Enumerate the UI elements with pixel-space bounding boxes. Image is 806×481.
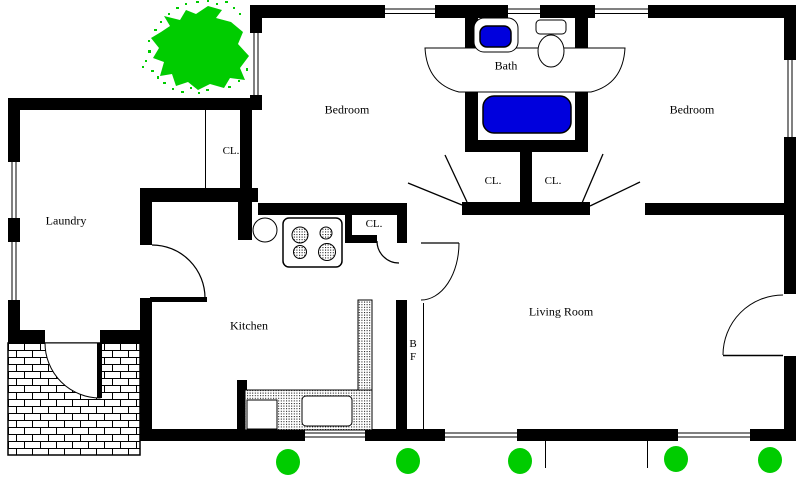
window-laundry-left-1 (8, 162, 20, 218)
shrub (664, 446, 688, 472)
burner (292, 227, 308, 243)
window-bedroom-right (784, 60, 796, 137)
window-bottom-3 (678, 429, 750, 441)
window-main-left (250, 33, 262, 95)
laundry-door-leaf (150, 297, 207, 302)
wall-laundry-bottom-left (8, 330, 45, 343)
label-bath: Bath (495, 59, 518, 74)
label-bedroom-left: Bedroom (325, 103, 370, 118)
window-laundry-left-2 (8, 242, 20, 300)
wall-kitchen-left-stub (238, 202, 252, 240)
burner (294, 246, 307, 259)
patio-door-leaf (97, 343, 102, 398)
floor-plan: Bedroom Bedroom Bath Laundry Kitchen Liv… (0, 0, 806, 481)
window-top-3 (595, 5, 648, 18)
wall-kitchen-top (258, 203, 407, 215)
label-bedroom-right: Bedroom (670, 103, 715, 118)
shrub (758, 447, 782, 473)
bath-sink (474, 18, 518, 52)
bath-sink-basin (480, 26, 511, 47)
window-top-1 (385, 5, 435, 18)
wall-kitchen-closet-right (397, 215, 407, 243)
wall-bifold (396, 300, 407, 431)
label-kitchen-closet: CL. (366, 218, 383, 230)
burner (319, 244, 336, 261)
window-bottom-1 (305, 429, 365, 441)
wall-bath-bottom (465, 140, 588, 152)
wall-wing-top (8, 98, 262, 110)
label-hall-closet-right: CL. (545, 175, 562, 187)
shrub (508, 448, 532, 474)
label-bifold-f: F (410, 351, 416, 364)
burner (320, 227, 332, 239)
label-hall-closet-left: CL. (485, 175, 502, 187)
label-bifold-b: B (409, 338, 416, 351)
wall-wing-left (8, 98, 20, 343)
wall-bedroom-left-side (240, 98, 252, 202)
wall-kitchen-closet-bottom (345, 235, 377, 243)
toilet-bowl (538, 35, 564, 67)
wall-laundry-right-lower (140, 298, 152, 441)
floor-plan-drawing (0, 0, 806, 481)
appliance (247, 400, 277, 429)
front-door-opening (784, 294, 796, 356)
stove (283, 218, 342, 267)
label-laundry-closet: CL. (223, 145, 240, 157)
shrub (276, 449, 300, 475)
label-bifold: B F (409, 338, 416, 364)
shrub (396, 448, 420, 474)
toilet (536, 20, 566, 67)
toilet-tank (536, 20, 566, 34)
label-kitchen: Kitchen (230, 319, 268, 334)
wall-hall-closet-divider (520, 152, 532, 215)
bath-vanity-arch (425, 48, 625, 92)
kitchen-sink (253, 218, 277, 242)
window-bottom-2 (445, 429, 517, 441)
label-laundry: Laundry (46, 214, 87, 229)
window-top-2 (508, 5, 540, 18)
wall-kitchen-closet-left (345, 215, 352, 237)
label-living-room: Living Room (529, 305, 593, 320)
wall-living-top-right (645, 203, 787, 215)
counter-sink (302, 396, 352, 426)
laundry-door-opening (140, 245, 152, 298)
bathtub (483, 96, 571, 133)
